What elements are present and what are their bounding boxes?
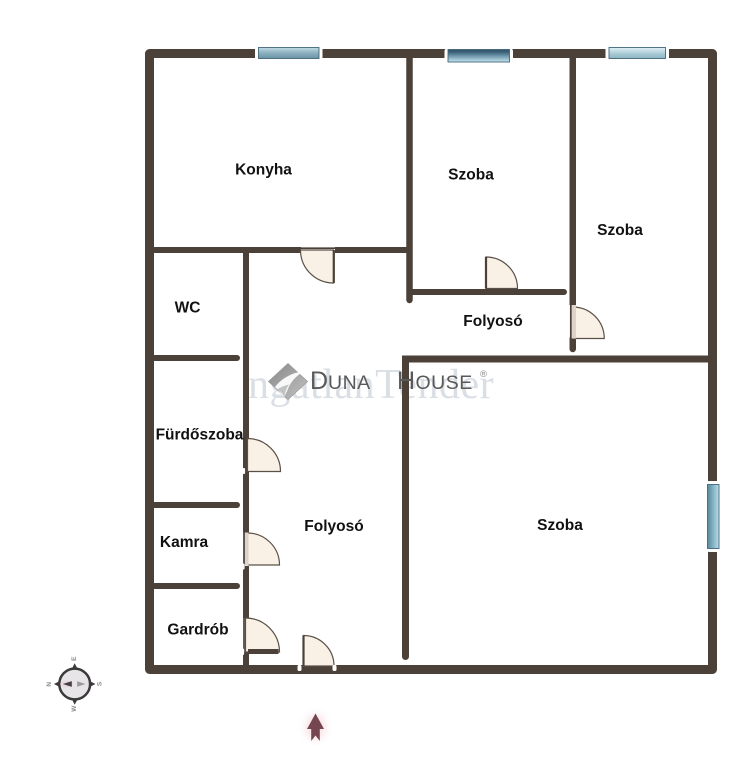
svg-text:D: D	[310, 367, 328, 395]
svg-text:UNA: UNA	[328, 372, 371, 394]
svg-text:WC: WC	[175, 300, 201, 317]
svg-text:Szoba: Szoba	[448, 167, 494, 184]
svg-text:N: N	[46, 682, 53, 687]
svg-text:Folyosó: Folyosó	[304, 518, 363, 535]
svg-text:Fürdőszoba: Fürdőszoba	[156, 427, 244, 444]
svg-text:E: E	[71, 656, 78, 661]
svg-text:Szoba: Szoba	[597, 222, 643, 239]
svg-text:Szoba: Szoba	[537, 517, 583, 534]
svg-text:OUSE: OUSE	[416, 372, 473, 394]
svg-text:Kamra: Kamra	[160, 534, 209, 551]
svg-text:Folyosó: Folyosó	[463, 313, 522, 330]
svg-text:W: W	[71, 705, 78, 712]
svg-text:Gardrób: Gardrób	[167, 622, 228, 639]
svg-text:®: ®	[480, 369, 487, 380]
svg-text:H: H	[397, 367, 415, 395]
svg-text:S: S	[96, 681, 103, 686]
svg-text:Konyha: Konyha	[235, 162, 292, 179]
